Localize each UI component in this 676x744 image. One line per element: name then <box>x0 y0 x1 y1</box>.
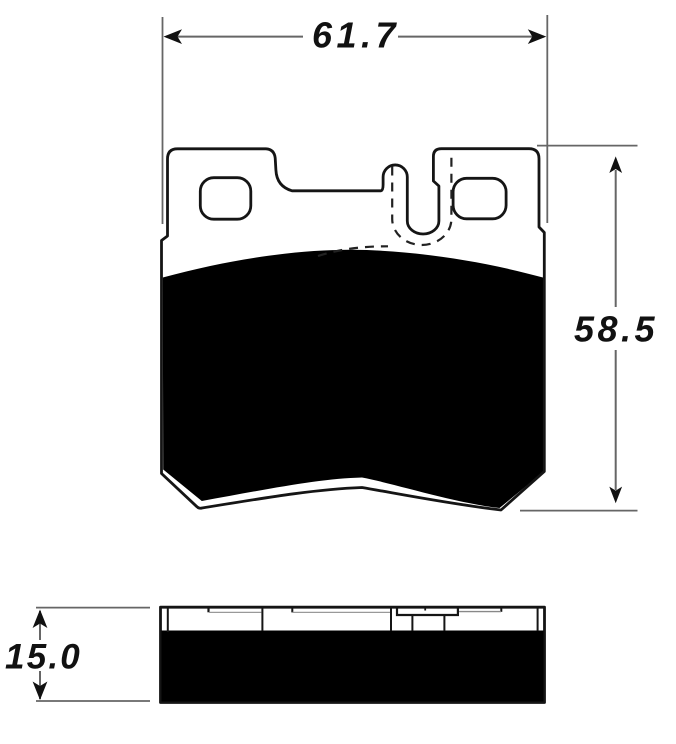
svg-text:15.0: 15.0 <box>5 638 82 677</box>
svg-text:61.7: 61.7 <box>312 15 400 56</box>
svg-text:58.5: 58.5 <box>574 309 658 350</box>
